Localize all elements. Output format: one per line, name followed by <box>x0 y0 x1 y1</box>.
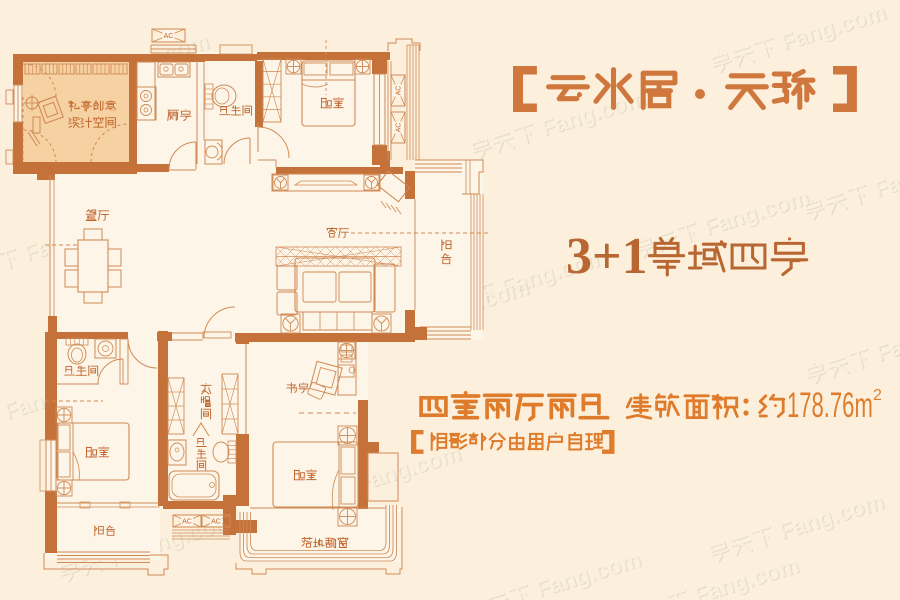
svg-text:AC: AC <box>396 123 403 133</box>
svg-text:2: 2 <box>873 387 882 404</box>
svg-text:AC: AC <box>164 33 174 40</box>
svg-text:3+1: 3+1 <box>566 228 648 285</box>
svg-text:178.76m: 178.76m <box>787 387 873 425</box>
svg-text:AC: AC <box>182 519 192 526</box>
svg-text:AC: AC <box>396 86 403 96</box>
svg-text:AC: AC <box>211 519 221 526</box>
